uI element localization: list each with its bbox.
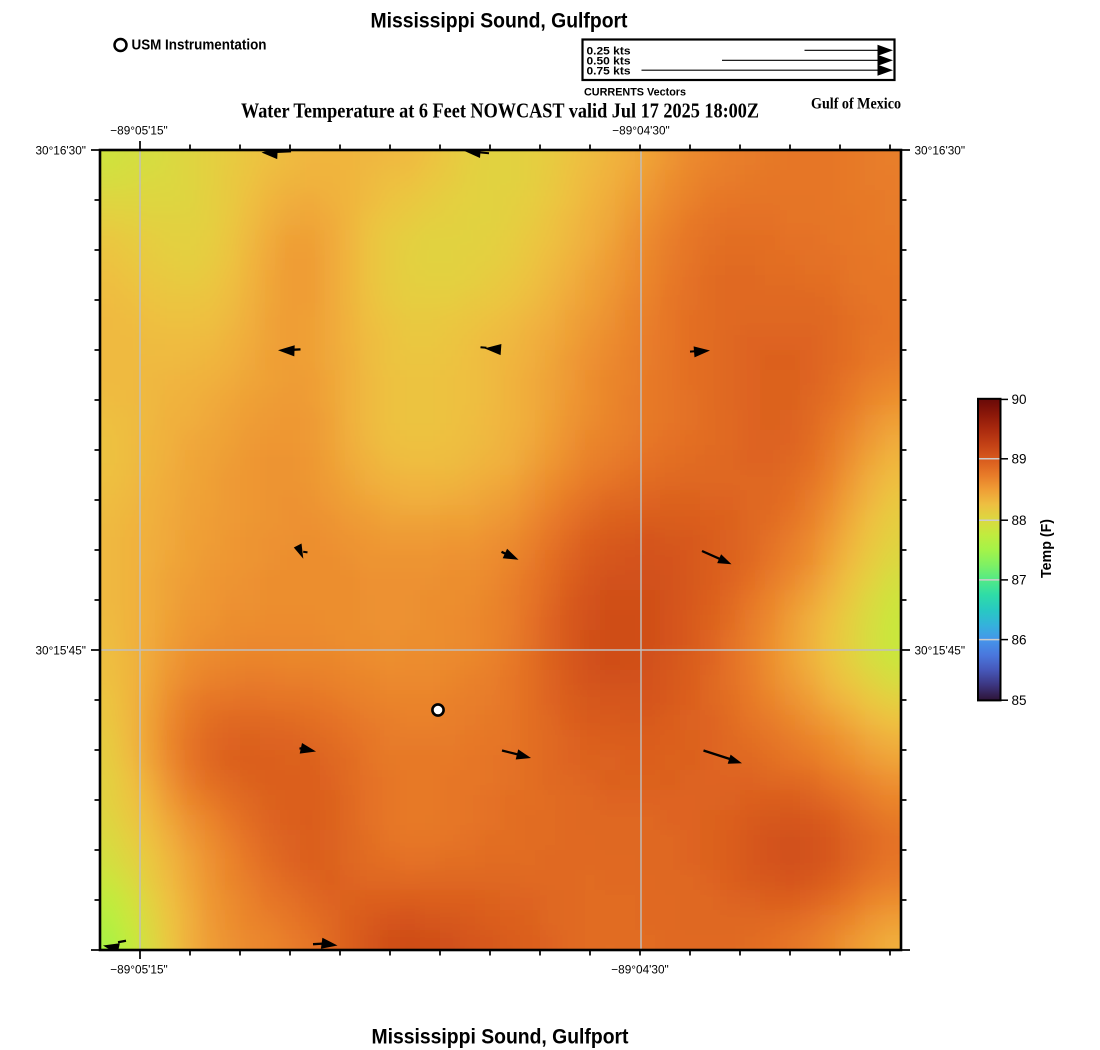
svg-text:89: 89 <box>1012 452 1027 467</box>
svg-text:−89°04'30": −89°04'30" <box>612 124 669 138</box>
svg-text:30°16'30": 30°16'30" <box>915 144 966 158</box>
svg-text:Gulf of Mexico: Gulf of Mexico <box>811 96 901 113</box>
svg-text:90: 90 <box>1012 392 1027 407</box>
svg-text:85: 85 <box>1012 693 1027 708</box>
svg-text:Mississippi Sound, Gulfport: Mississippi Sound, Gulfport <box>371 9 628 32</box>
svg-text:0.75 kts: 0.75 kts <box>587 66 631 78</box>
svg-text:CURRENTS Vectors: CURRENTS Vectors <box>584 87 686 99</box>
svg-text:87: 87 <box>1012 573 1027 588</box>
svg-text:Temp (F): Temp (F) <box>1038 519 1055 578</box>
svg-text:Water Temperature at 6 Feet NO: Water Temperature at 6 Feet NOWCAST vali… <box>241 99 759 123</box>
svg-text:86: 86 <box>1012 632 1027 647</box>
svg-text:−89°05'15": −89°05'15" <box>110 124 167 138</box>
svg-text:88: 88 <box>1012 513 1027 528</box>
svg-text:30°15'45": 30°15'45" <box>915 644 966 658</box>
svg-text:−89°05'15": −89°05'15" <box>110 963 167 977</box>
svg-text:Mississippi Sound, Gulfport: Mississippi Sound, Gulfport <box>372 1026 629 1049</box>
svg-text:−89°04'30": −89°04'30" <box>611 963 668 977</box>
svg-text:30°16'30": 30°16'30" <box>35 144 86 158</box>
svg-text:30°15'45": 30°15'45" <box>35 644 86 658</box>
svg-text:USM Instrumentation: USM Instrumentation <box>132 38 267 54</box>
